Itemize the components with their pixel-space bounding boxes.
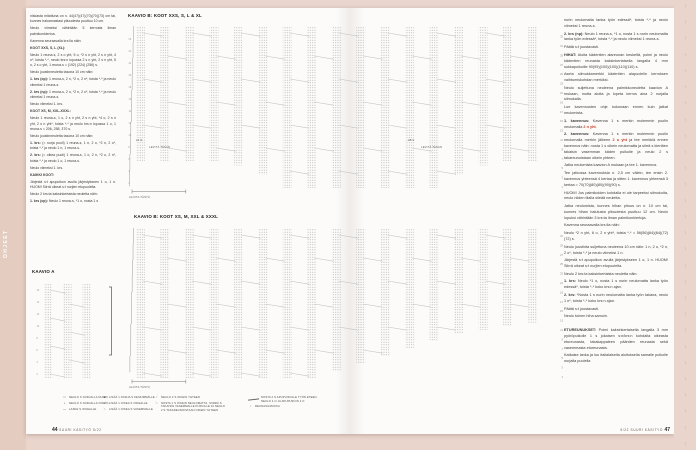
legend-item: ⟍NOSTA 1 S OIKEIN NEULOMATTA, SIIRRÄ STA…	[154, 402, 225, 413]
legend-group: ●LISÄÄ 1 NURJA S KESKIMMÄLLE⟋LISÄÄ 1 OIK…	[102, 396, 155, 414]
instruction-paragraph: Tee jatkossa kavennuksia n. 2,5 cm välei…	[564, 171, 668, 189]
instruction-paragraph: Kavenna seuraavalla krs:lla näin:	[30, 39, 116, 44]
instruction-paragraph: ETUREUNUKSET: Poimi kaksinkertaisella la…	[564, 328, 668, 352]
svg-text:10: 10	[129, 134, 132, 137]
right-text-column: nurin neulomatta lanka työn edessä*, toi…	[564, 18, 668, 367]
stitch-symbol-icon: □	[62, 396, 67, 399]
stitch-symbol-icon: •	[62, 402, 67, 405]
margin-pattern-glyph: ⌐	[682, 166, 688, 170]
highlighted-instruction: 2 n yht	[583, 125, 595, 129]
instruction-paragraph: Neulo 1 reuna-s, 2 s o yht, 5 o, *2 s n …	[30, 53, 116, 69]
right-page-number: 47	[664, 427, 670, 433]
margin-pattern-glyph: ⌐	[682, 118, 688, 122]
margin-pattern-glyph: ⌐	[682, 134, 688, 138]
svg-text:8: 8	[37, 337, 39, 340]
legend-item-text: LISÄÄ 1 OIKEA S VASEMMALLE	[109, 408, 153, 412]
instruction-paragraph: niskasta mitattuna on n. 44(47)(47)(70)(…	[30, 14, 116, 25]
paper-sheet: niskasta mitattuna on n. 44(47)(47)(70)(…	[26, 8, 674, 434]
legend-item-text: LISÄÄ 1 NURJA S KESKIMMÄLLE	[109, 396, 155, 400]
margin-pattern-glyph: ⌐	[682, 345, 688, 349]
chart-a-title: KAAVIO A	[32, 269, 55, 274]
svg-text:1: 1	[562, 375, 564, 379]
instruction-paragraph: Jatka neulomista kaavion A mukaan ja tee…	[564, 163, 668, 169]
section-tab: OHJEET	[3, 206, 9, 258]
highlighted-instruction: 2 o yht	[612, 138, 627, 142]
magazine-spread: OHJEET niskasta mitattuna on n. 44(47)(4…	[0, 0, 696, 450]
chart-a: 246810121416	[36, 279, 114, 385]
instruction-paragraph: 1. krs (op): 1 reuna-s, 2 n, *2 o, 2 n*,…	[30, 77, 116, 88]
margin-pattern-glyph: ⌐	[682, 85, 688, 89]
section-heading: KOOT XXS, S, L (XL):	[30, 46, 116, 51]
right-issue-label: 5/22 SUURI KÄSITYÖ	[620, 428, 663, 432]
svg-text:6: 6	[37, 349, 39, 352]
margin-pattern-glyph: ⌐	[682, 183, 688, 187]
legend-item-text: LISÄÄ 1 OIKEA S OIKEALLE	[109, 402, 148, 406]
instruction-paragraph: 2. krs (np): Neulo 1 reuna-s, *1 o, nost…	[564, 32, 668, 44]
legend-item: ⟋LISÄÄ 1 OIKEA S OIKEALLE	[102, 402, 155, 406]
svg-text:14: 14	[37, 301, 40, 304]
stitch-symbol-icon: ⟋	[154, 396, 159, 399]
margin-pattern-glyph: ⌐	[682, 69, 688, 73]
margin-pattern-glyph: ⌐	[682, 215, 688, 219]
instruction-paragraph: Katkaise lanka ja luo italialaisella alo…	[564, 353, 668, 365]
instruction-paragraph: Neulo joustinta suljettuna neuleena 10 c…	[564, 245, 668, 257]
margin-pattern-glyph: ⌐	[682, 410, 688, 414]
svg-text:4: 4	[37, 361, 39, 364]
left-issue-label: SUURI KÄSITYÖ 5/22	[59, 428, 102, 432]
instruction-paragraph: nurin neulomatta lanka työn edessä*, toi…	[564, 18, 668, 30]
left-page-footer: 44 SUURI KÄSITYÖ 5/22	[52, 427, 102, 433]
svg-text:20: 20	[129, 74, 132, 77]
instruction-paragraph: Neulo viimeksi vähintään 5 kerrosta ilma…	[30, 26, 116, 37]
instruction-paragraph: Järjestä s:t apupuikon avulla järjestyks…	[30, 180, 116, 191]
section-heading: KOOT XS, M, XXL-XXXL:	[30, 109, 116, 114]
legend-item-text: NOSTA 2 S APUPUIKOLLE TYÖN ETEEN,NEULO 4…	[261, 396, 318, 403]
chart-b2: 135791113151719212325272931	[128, 224, 564, 384]
chart-b1: 1357911131517192123252729313324681012141…	[128, 22, 564, 194]
instruction-paragraph: HIHAT: Aloita kädentien alareunan keskel…	[564, 53, 668, 71]
margin-pattern-glyph: ⌐	[682, 361, 688, 365]
margin-pattern-glyph: ⌐	[682, 442, 688, 446]
margin-pattern-glyph: ⌐	[682, 102, 688, 106]
legend-group: NOSTA 2 S APUPUIKOLLE TYÖN ETEEN,NEULO 4…	[248, 396, 318, 411]
svg-text:2: 2	[37, 373, 39, 376]
instruction-paragraph: 2. krs: (= oikea puoli) 1 reuna-s, 1 o, …	[30, 153, 116, 164]
margin-pattern-glyph: ⌐	[682, 264, 688, 268]
instruction-paragraph: 2. kavennus: Kavenna 1 s merkin molemmin…	[564, 132, 668, 161]
svg-text:18: 18	[129, 86, 132, 89]
margin-pattern-glyph: ⌐	[682, 393, 688, 397]
margin-pattern-glyph: ⌐	[682, 4, 688, 8]
svg-text:2: 2	[129, 182, 131, 185]
margin-pattern-glyph: ⌐	[682, 280, 688, 284]
chart-b1-title: KAAVIO B: KOOT XXS, S, L & XL	[128, 13, 202, 18]
instruction-paragraph: 1. krs: Neulo *1 o, nosta 1 s nurin neul…	[564, 279, 668, 291]
section-heading: KAIKKI KOOT:	[30, 173, 116, 178]
legend-item-text: NOSTA 1 S OIKEIN NEULOMATTA, SIIRRÄ STAK…	[161, 402, 225, 413]
instruction-paragraph: Aseta silmukkamerkki kädentien alapuolel…	[564, 72, 668, 84]
instruction-paragraph: 1. krs (op): Neulo 1 reuna-s, *1 o, nost…	[30, 199, 116, 204]
instruction-paragraph: Neulo viimeksi 1. krs.	[30, 102, 116, 107]
instruction-paragraph: Neulo joustinneuletta tasona 10 cm näin:	[30, 134, 116, 139]
instruction-paragraph: Neulo toinen hiha samoin.	[564, 314, 668, 320]
margin-pattern-glyph: ⌐	[682, 296, 688, 300]
margin-pattern-glyph: ⌐	[682, 53, 688, 57]
margin-pattern-glyph: ⌐	[682, 20, 688, 24]
margin-pattern-glyph: ⌐	[682, 426, 688, 430]
instruction-paragraph: Lue kavennusten ohje kokonaan ennen kuin…	[564, 105, 668, 117]
legend-item-text: REUNASILMUKKA	[255, 405, 280, 409]
chart-b1-spread-left: LEVITÄ TASAN	[149, 146, 170, 149]
margin-pattern-glyph: ⌐	[682, 329, 688, 333]
instruction-paragraph: Jatka neulomista, kunnes hihan pituus on…	[564, 204, 668, 222]
instruction-paragraph: Järjestä s:t apupuikon avulla järjestyks…	[564, 258, 668, 270]
instruction-paragraph: Neulo suljettuna neuleena palmikkoneulet…	[564, 86, 668, 104]
instruction-paragraph: Neulo joustinneuletta tasona 10 cm näin:	[30, 70, 116, 75]
instruction-paragraph: Päätä s:t joustavasti.	[564, 307, 668, 313]
instruction-paragraph: Päätä s:t joustavasti.	[564, 45, 668, 51]
chart-b1-spread-right: LEVITÄ TASAN	[421, 146, 442, 149]
instruction-paragraph: Neulo viimeksi 1. krs.	[30, 166, 116, 171]
margin-pattern-glyph: ⌐	[682, 248, 688, 252]
stitch-symbol-icon: —	[62, 408, 67, 411]
instruction-paragraph: 1. krs: (= nurja puoli) 1 reuna-s, 1 n, …	[30, 141, 116, 152]
chart-b1-count-left: 24 S	[136, 139, 142, 142]
chart-b1-start-label: ALOITA TÄSTÄ	[129, 196, 150, 199]
stitch-symbol-icon: ▫	[248, 405, 253, 408]
instruction-paragraph: Kavenna seuraavalla krs:lla näin:	[564, 223, 668, 229]
legend-group: ⟋NEULO 2 S OIKEIN YHTEEN⟍NOSTA 1 S OIKEI…	[154, 396, 225, 415]
right-page-footer: 5/22 SUURI KÄSITYÖ 47	[620, 427, 670, 433]
stitch-symbol-icon: ●	[102, 396, 107, 399]
legend-item: ▫REUNASILMUKKA	[248, 405, 318, 409]
chart-b2-title: KAAVIO B: KOOT XS, M, XXL & XXXL	[134, 214, 218, 219]
svg-text:26: 26	[129, 38, 132, 41]
legend-item-text: NEULO 2 S OIKEIN YHTEEN	[161, 396, 200, 400]
margin-pattern-glyph: ⌐	[682, 199, 688, 203]
instruction-paragraph: Neulo *2 n yht, 6 o, 2 n yht*, toista *-…	[564, 231, 668, 243]
svg-text:12: 12	[129, 122, 132, 125]
margin-pattern: ⌐⌐⌐⌐⌐⌐⌐⌐⌐⌐⌐⌐⌐⌐⌐⌐⌐⌐⌐⌐⌐⌐⌐⌐⌐⌐⌐⌐	[674, 0, 696, 450]
legend-item: ●LISÄÄ 1 NURJA S KESKIMMÄLLE	[102, 396, 155, 400]
svg-text:10: 10	[37, 325, 40, 328]
cable-symbol-icon	[248, 396, 259, 400]
margin-pattern-glyph: ⌐	[682, 37, 688, 41]
legend-item-text: LASKE S OIKEALLE	[69, 408, 96, 412]
svg-text:16: 16	[129, 98, 132, 101]
legend-item: NOSTA 2 S APUPUIKOLLE TYÖN ETEEN,NEULO 4…	[248, 396, 318, 403]
instruction-paragraph: 2. krs: *Nosta 1 s nurin neulomatta lank…	[564, 293, 668, 305]
svg-text:6: 6	[129, 158, 131, 161]
instruction-paragraph: 2. krs (np): 1 reuna-s, 2 o, *2 n, 2 o*,…	[30, 90, 116, 101]
svg-text:4: 4	[129, 170, 131, 173]
left-text-column: niskasta mitattuna on n. 44(47)(47)(70)(…	[30, 14, 116, 206]
margin-pattern-glyph: ⌐	[682, 312, 688, 316]
svg-text:22: 22	[129, 62, 132, 65]
svg-text:16: 16	[37, 289, 40, 292]
stitch-symbol-icon: ⟋	[102, 402, 107, 405]
instruction-paragraph: HUOM! Jos palmikoiden kohdalla ei ole ta…	[564, 191, 668, 203]
instruction-paragraph: Neulo 2 krs:ta kaksinkertaista neuletta …	[30, 192, 116, 197]
svg-text:24: 24	[129, 50, 132, 53]
left-page-number: 44	[52, 427, 58, 433]
chart-b1-count-right: 28 S	[408, 139, 414, 142]
instruction-paragraph: Neulo 2 krs:ta kaksinkertaista neuletta …	[564, 272, 668, 278]
instruction-paragraph: 1. kavennus: Kavenna 1 s merkin molemmin…	[564, 119, 668, 131]
stitch-symbol-icon: ⟍	[102, 408, 107, 411]
instruction-paragraph: Neulo 1 reuna-s, 1 o, 2 s n yht, 2 s n y…	[30, 116, 116, 132]
svg-text:12: 12	[37, 313, 40, 316]
margin-pattern-glyph: ⌐	[682, 377, 688, 381]
legend-item: ⟋NEULO 2 S OIKEIN YHTEEN	[154, 396, 225, 400]
margin-pattern-glyph: ⌐	[682, 150, 688, 154]
stitch-symbol-icon: ⟍	[154, 402, 159, 405]
margin-pattern-glyph: ⌐	[682, 231, 688, 235]
chart-b2-start-label: ALOITA TÄSTÄ	[129, 386, 150, 389]
legend-item: ⟍LISÄÄ 1 OIKEA S VASEMMALLE	[102, 408, 155, 412]
